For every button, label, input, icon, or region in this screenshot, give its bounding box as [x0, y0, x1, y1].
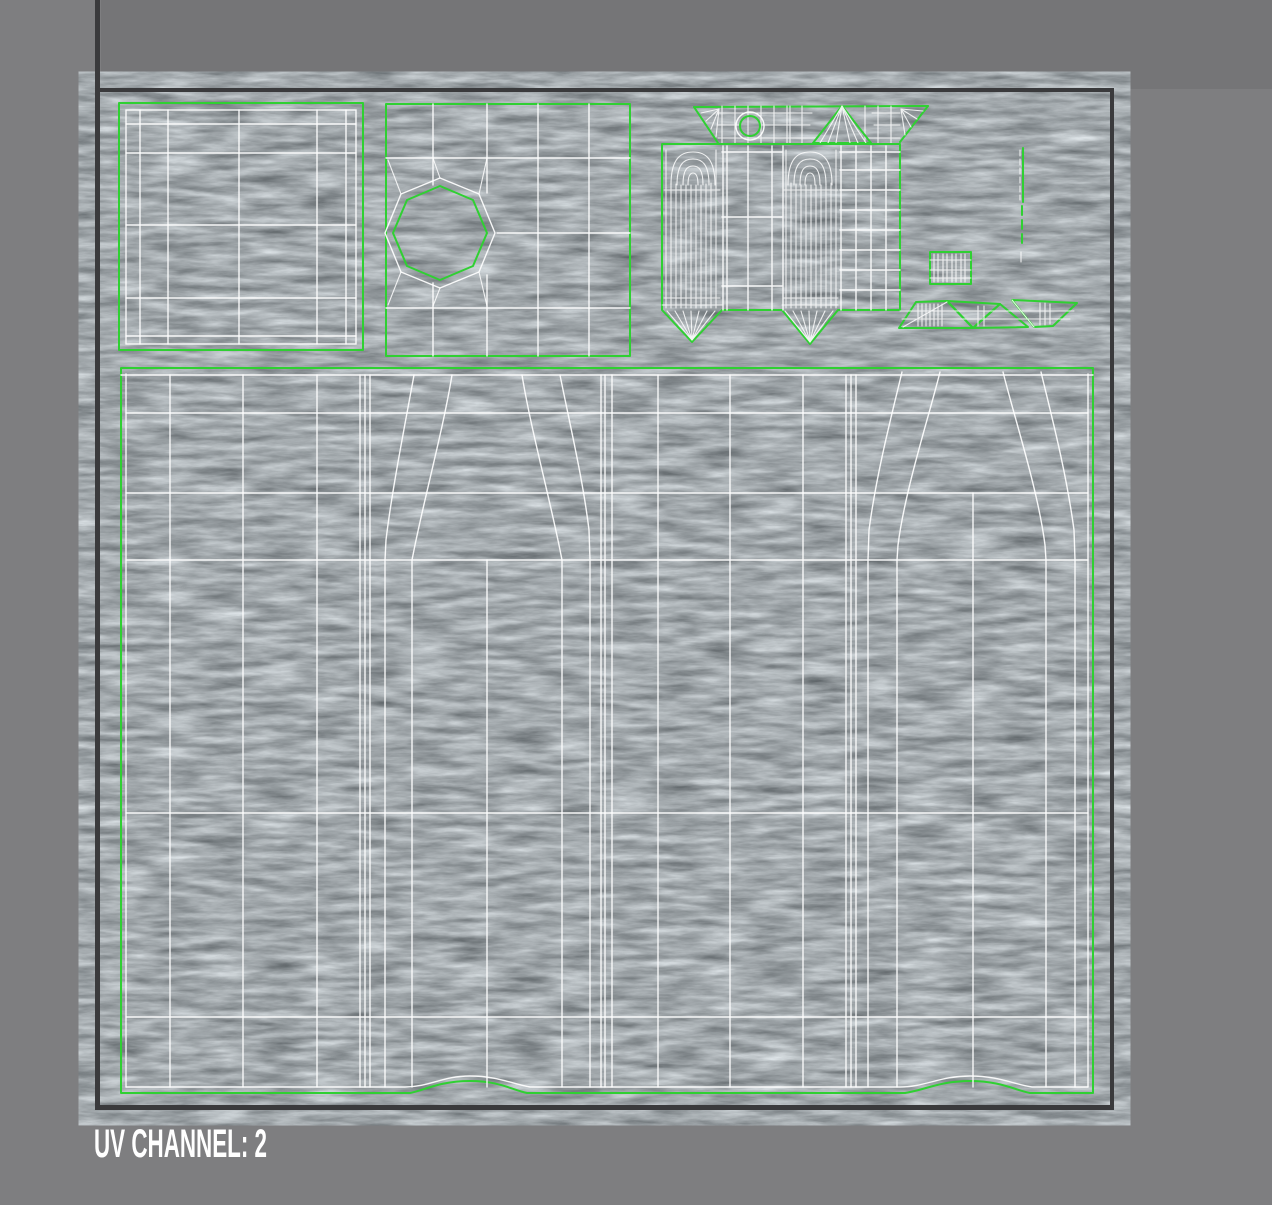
frame-left-line [95, 0, 100, 1110]
top-strip [101, 0, 1272, 89]
frame-top [95, 88, 1114, 92]
frame-right [1110, 88, 1114, 1110]
uv-channel-label: UV CHANNEL: 2 [94, 1122, 267, 1167]
uv-channel-text: UV CHANNEL: 2 [94, 1122, 267, 1166]
uv-editor-canvas[interactable] [0, 0, 1272, 1200]
frame-bottom [95, 1105, 1114, 1110]
uv-editor-window: UV CHANNEL: 2 [0, 0, 1272, 1200]
